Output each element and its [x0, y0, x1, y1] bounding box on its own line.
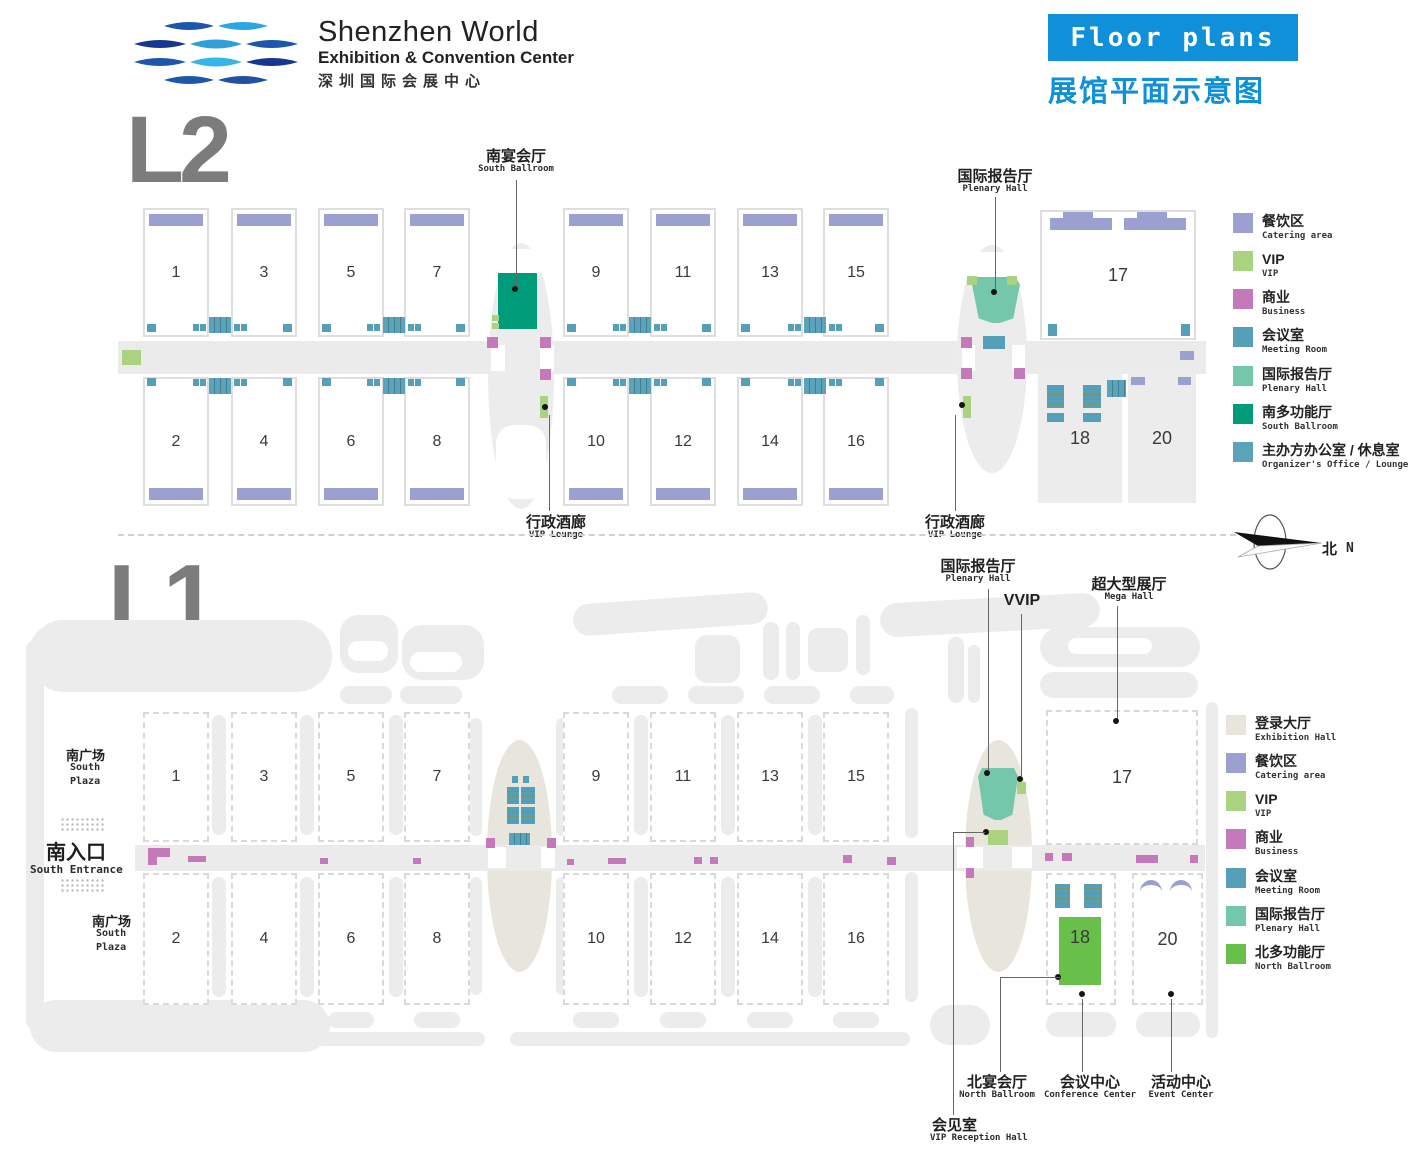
l1-hall-5: 5	[318, 712, 384, 842]
north-ballroom-area: 18	[1059, 917, 1101, 985]
vvip-area	[1017, 782, 1026, 794]
hall-number: 2	[172, 930, 181, 948]
l1-hall-16: 16	[823, 873, 889, 1005]
l2-hall-4: 4	[231, 377, 297, 506]
catering-strip	[237, 214, 291, 226]
business-area	[1014, 368, 1025, 379]
vip-area	[492, 315, 499, 321]
l1-plenary-label: 国际报告厅	[913, 555, 1043, 576]
vip-lounge-label: 行政酒廊	[491, 511, 621, 532]
catering-strip	[569, 488, 623, 500]
l2-hall-11: 11	[650, 208, 716, 337]
meeting-room	[1047, 413, 1064, 422]
catering-strip	[324, 214, 378, 226]
hall-number: 15	[847, 768, 865, 786]
legend-item-meeting-room: 会议室Meeting Room	[1233, 327, 1327, 355]
hall-number: 7	[433, 264, 442, 282]
brand-subtitle: Exhibition & Convention Center	[318, 48, 574, 68]
meeting-room	[1083, 413, 1101, 422]
leader-line	[1000, 977, 1001, 1072]
south-entrance-label: 南入口	[46, 836, 106, 865]
event-center-label-en: Event Center	[1121, 1090, 1241, 1100]
leader-line	[988, 589, 989, 770]
l2-hall-9: 9	[563, 208, 629, 337]
meeting-room	[1055, 884, 1070, 908]
l1-hall-7: 7	[404, 712, 470, 842]
hall-number: 1	[172, 768, 181, 786]
catering-strip	[656, 214, 710, 226]
legend-item-business: 商业Business	[1233, 289, 1305, 317]
catering-arc	[1140, 880, 1162, 892]
leader-dot	[1113, 718, 1119, 724]
south-plaza-label-en: Plaza	[70, 776, 100, 787]
hall-number: 17	[1108, 265, 1128, 286]
l2-corridor	[118, 341, 1206, 374]
passage	[540, 345, 554, 371]
l1-hall-20: 20	[1132, 873, 1203, 1005]
meeting-room	[507, 787, 519, 804]
hall-number: 14	[761, 930, 779, 948]
legend-item-north-ballroom: 北多功能厅North Ballroom	[1226, 944, 1331, 972]
meeting-room	[983, 336, 1005, 349]
l2-hall-20: 20	[1128, 373, 1196, 503]
hall-number: 17	[1112, 767, 1132, 788]
leader-dot	[959, 402, 965, 408]
business-area	[540, 337, 551, 348]
l2-hall-15: 15	[823, 208, 889, 337]
l1-hall-14: 14	[737, 873, 803, 1005]
floor-plans-banner: Floor plans	[1048, 14, 1298, 61]
leader-line	[955, 415, 956, 511]
business-area	[961, 337, 972, 348]
l1-hall-13: 13	[737, 712, 803, 842]
legend-item-south-ballroom: 南多功能厅South Ballroom	[1233, 404, 1338, 432]
hall-number: 11	[675, 768, 692, 786]
legend-swatch	[1233, 251, 1253, 271]
shenzhen-world-logo-icon	[126, 10, 301, 92]
compass-north-en: N	[1346, 541, 1354, 556]
l2-hall-10: 10	[563, 377, 629, 506]
passage	[1012, 847, 1032, 868]
l1-hall-17: 17	[1046, 710, 1198, 845]
l1-hall-10: 10	[563, 873, 629, 1005]
meeting-room	[521, 807, 535, 824]
leader-line	[1117, 606, 1118, 719]
l2-hall-7: 7	[404, 208, 470, 337]
l1-plenary-label-en: Plenary Hall	[913, 574, 1043, 584]
hall-number: 8	[433, 930, 442, 948]
south-ballroom-area	[498, 273, 537, 329]
hall-number: 6	[347, 930, 356, 948]
hall-number: 12	[674, 433, 692, 451]
organizer-office	[1107, 380, 1126, 397]
south-plaza-label-en: South	[96, 928, 126, 939]
l2-hall-13: 13	[737, 208, 803, 337]
catering-strip	[1124, 218, 1186, 230]
catering-arc	[1170, 880, 1192, 892]
passage	[541, 847, 555, 868]
legend-item-organizer: 主办方办公室 / 休息室Organizer's Office / Lounge	[1233, 442, 1408, 470]
hall-number: 3	[260, 768, 269, 786]
catering-strip	[324, 488, 378, 500]
meeting-room	[1048, 324, 1057, 336]
floor-separator	[118, 534, 1246, 536]
vip-area	[492, 323, 499, 329]
catering-strip	[743, 488, 797, 500]
hall-number: 1	[172, 264, 181, 282]
legend-swatch	[1233, 404, 1253, 424]
hall-number: 18	[1070, 927, 1090, 947]
legend-item-business: 商业Business	[1226, 829, 1298, 857]
l1-hall-1: 1	[143, 712, 209, 842]
organizer-office	[1083, 385, 1101, 408]
leader-line	[953, 832, 954, 1115]
leader-dot	[542, 404, 548, 410]
legend-swatch	[1226, 868, 1246, 888]
pod-tip	[496, 425, 546, 499]
hall-number: 2	[172, 433, 181, 451]
l2-hall-12: 12	[650, 377, 716, 506]
catering-strip	[237, 488, 291, 500]
leader-line	[1021, 614, 1022, 776]
hall-number: 20	[1152, 428, 1172, 449]
meeting-room	[521, 787, 535, 804]
business-area	[961, 368, 972, 379]
catering-strip	[410, 214, 464, 226]
l2-hall-1: 1	[143, 208, 209, 337]
l2-hall-5: 5	[318, 208, 384, 337]
floor-plan-page: Shenzhen World Exhibition & Convention C…	[0, 0, 1411, 1159]
hall-number: 9	[592, 768, 601, 786]
business-area	[540, 369, 551, 380]
entrance-texture	[60, 817, 104, 832]
l1-hall-2: 2	[143, 873, 209, 1005]
leader-line	[549, 415, 550, 511]
passage	[957, 847, 983, 868]
l2-hall-3: 3	[231, 208, 297, 337]
leader-dot	[1168, 991, 1174, 997]
hall-number: 10	[587, 930, 605, 948]
vip-reception-label: 会见室	[932, 1114, 977, 1135]
compass-north-cn: 北	[1322, 538, 1337, 559]
legend-swatch	[1226, 829, 1246, 849]
catering-strip	[149, 488, 203, 500]
legend-item-catering: 餐饮区Catering area	[1233, 213, 1332, 241]
l1-hall-11: 11	[650, 712, 716, 842]
l1-hall-12: 12	[650, 873, 716, 1005]
hall-number: 7	[433, 768, 442, 786]
mega-hall-label: 超大型展厅	[1064, 573, 1194, 594]
legend-swatch	[1233, 366, 1253, 386]
leader-dot	[1017, 776, 1023, 782]
legend-item-vip: VIPVIP	[1233, 251, 1285, 279]
catering-strip	[656, 488, 710, 500]
event-center-label: 活动中心	[1121, 1071, 1241, 1092]
meeting-room	[1181, 324, 1190, 336]
hall-number: 4	[260, 433, 269, 451]
meeting-room	[1084, 884, 1102, 908]
catering-strip	[149, 214, 203, 226]
legend-swatch	[1226, 906, 1246, 926]
hall-number: 18	[1070, 428, 1090, 449]
legend-swatch	[1233, 289, 1253, 309]
l1-hall-6: 6	[318, 873, 384, 1005]
hall-number: 16	[847, 930, 865, 948]
hall-number: 16	[847, 433, 865, 451]
hall-number: 6	[347, 433, 356, 451]
l2-hall-8: 8	[404, 377, 470, 506]
leader-line	[995, 197, 996, 289]
pod-tip	[964, 252, 1020, 278]
l2-hall-16: 16	[823, 377, 889, 506]
hall-number: 20	[1157, 929, 1177, 950]
catering-strip	[1131, 377, 1145, 385]
legend-swatch	[1226, 715, 1246, 735]
catering-strip	[829, 488, 883, 500]
north-compass-icon	[1234, 512, 1334, 576]
hall-number: 10	[587, 433, 605, 451]
l2-plenary-label-en: Plenary Hall	[930, 184, 1060, 194]
hall-number: 5	[347, 264, 356, 282]
hall-number: 3	[260, 264, 269, 282]
meeting-room	[507, 807, 519, 824]
catering-strip	[569, 214, 623, 226]
legend-item-plenary: 国际报告厅Plenary Hall	[1226, 906, 1325, 934]
hall-number: 4	[260, 930, 269, 948]
hall-number: 12	[674, 930, 692, 948]
floor-plans-banner-cn: 展馆平面示意图	[1048, 68, 1265, 110]
hall-number: 5	[347, 768, 356, 786]
leader-dot	[991, 289, 997, 295]
l2-plenary-label: 国际报告厅	[930, 165, 1060, 186]
vip-reception-label-en: VIP Reception Hall	[930, 1133, 1028, 1143]
south-ballroom-label: 南宴会厅	[451, 145, 581, 166]
south-entrance-label-en: South Entrance	[30, 863, 123, 876]
l2-heading: L2	[126, 112, 227, 188]
catering-strip	[410, 488, 464, 500]
hall-number: 15	[847, 264, 865, 282]
l2-hall-17: 17	[1040, 210, 1196, 340]
passage	[488, 847, 506, 868]
vip-lounge-label: 行政酒廊	[890, 511, 1020, 532]
entrance-texture	[60, 878, 104, 893]
catering-strip	[829, 214, 883, 226]
leader-line	[953, 832, 985, 833]
vip-area	[967, 276, 977, 285]
catering-strip	[743, 214, 797, 226]
business-area	[487, 337, 498, 348]
leader-dot	[984, 770, 990, 776]
south-plaza-label-en: Plaza	[96, 942, 126, 953]
catering-strip	[1050, 218, 1112, 230]
legend-swatch	[1226, 753, 1246, 773]
catering-strip	[1178, 377, 1191, 385]
south-ballroom-label-en: South Ballroom	[451, 164, 581, 174]
catering-area	[1180, 351, 1194, 360]
legend-item-exhibition-hall: 登录大厅Exhibition Hall	[1226, 715, 1336, 743]
vip-area	[1007, 276, 1017, 285]
plenary-hall-area	[978, 768, 1018, 820]
l2-hall-14: 14	[737, 377, 803, 506]
leader-line	[516, 180, 517, 287]
l1-hall-3: 3	[231, 712, 297, 842]
l1-hall-15: 15	[823, 712, 889, 842]
legend-swatch	[1226, 791, 1246, 811]
legend-item-meeting-room: 会议室Meeting Room	[1226, 868, 1320, 896]
hall-number: 8	[433, 433, 442, 451]
hall-number: 13	[761, 264, 779, 282]
legend-item-vip: VIPVIP	[1226, 791, 1278, 819]
legend-swatch	[1233, 442, 1253, 462]
mega-hall-label-en: Mega Hall	[1064, 592, 1194, 602]
leader-line	[1000, 977, 1060, 978]
legend-swatch	[1226, 944, 1246, 964]
hall-number: 11	[675, 264, 692, 282]
passage	[491, 345, 505, 371]
hall-number: 9	[592, 264, 601, 282]
organizer-office	[1047, 385, 1064, 408]
hall-number: 14	[761, 433, 779, 451]
l1-hall-4: 4	[231, 873, 297, 1005]
brand-title-cn: 深圳国际会展中心	[318, 70, 486, 91]
l1-hall-8: 8	[404, 873, 470, 1005]
l1-hall-18: 18	[1046, 873, 1116, 1005]
vip-reception-area	[988, 830, 1008, 845]
l2-hall-2: 2	[143, 377, 209, 506]
hall-number: 13	[761, 768, 779, 786]
legend-swatch	[1233, 327, 1253, 347]
south-plaza-label-en: South	[70, 762, 100, 773]
leader-dot	[512, 286, 518, 292]
leader-dot	[1079, 991, 1085, 997]
vip-area	[122, 350, 141, 365]
leader-line	[1082, 999, 1083, 1072]
pod-tip	[496, 249, 546, 275]
legend-swatch	[1233, 213, 1253, 233]
l2-hall-6: 6	[318, 377, 384, 506]
l1-hall-9: 9	[563, 712, 629, 842]
brand-title: Shenzhen World	[318, 16, 539, 49]
legend-item-plenary: 国际报告厅Plenary Hall	[1233, 366, 1332, 394]
legend-item-catering: 餐饮区Catering area	[1226, 753, 1325, 781]
leader-line	[1171, 999, 1172, 1072]
